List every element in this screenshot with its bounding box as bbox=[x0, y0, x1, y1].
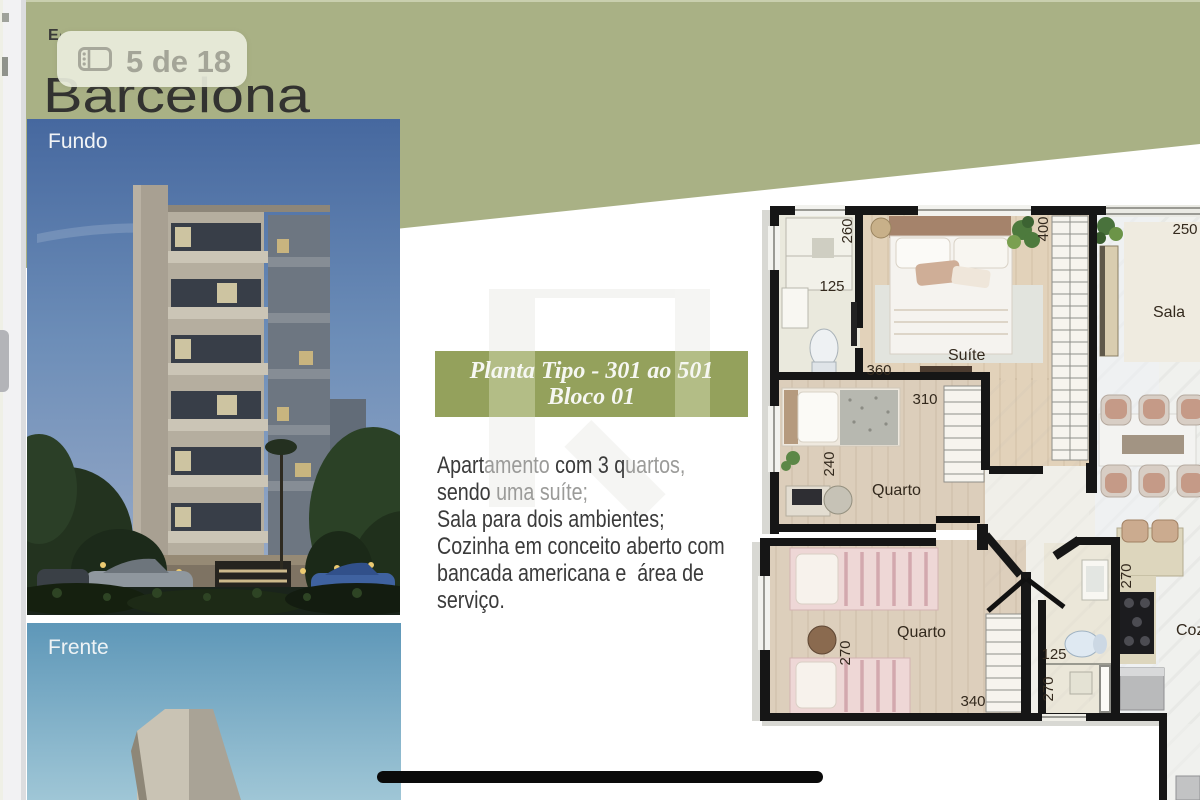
svg-text:240: 240 bbox=[821, 451, 838, 476]
svg-text:270: 270 bbox=[1040, 676, 1057, 701]
svg-text:400: 400 bbox=[1035, 216, 1052, 241]
svg-text:310: 310 bbox=[912, 391, 937, 408]
svg-text:360: 360 bbox=[866, 362, 891, 379]
svg-text:Suíte: Suíte bbox=[948, 347, 985, 364]
svg-text:270: 270 bbox=[1118, 563, 1135, 588]
svg-text:270: 270 bbox=[837, 640, 854, 665]
svg-text:Sala: Sala bbox=[1153, 304, 1185, 321]
svg-text:Quarto: Quarto bbox=[872, 482, 921, 499]
svg-text:340: 340 bbox=[960, 693, 985, 710]
svg-text:125: 125 bbox=[819, 278, 844, 295]
svg-text:Coz: Coz bbox=[1176, 622, 1200, 639]
svg-text:125: 125 bbox=[1041, 646, 1066, 663]
svg-text:250: 250 bbox=[1172, 221, 1197, 238]
svg-text:260: 260 bbox=[839, 218, 856, 243]
svg-text:Quarto: Quarto bbox=[897, 624, 946, 641]
